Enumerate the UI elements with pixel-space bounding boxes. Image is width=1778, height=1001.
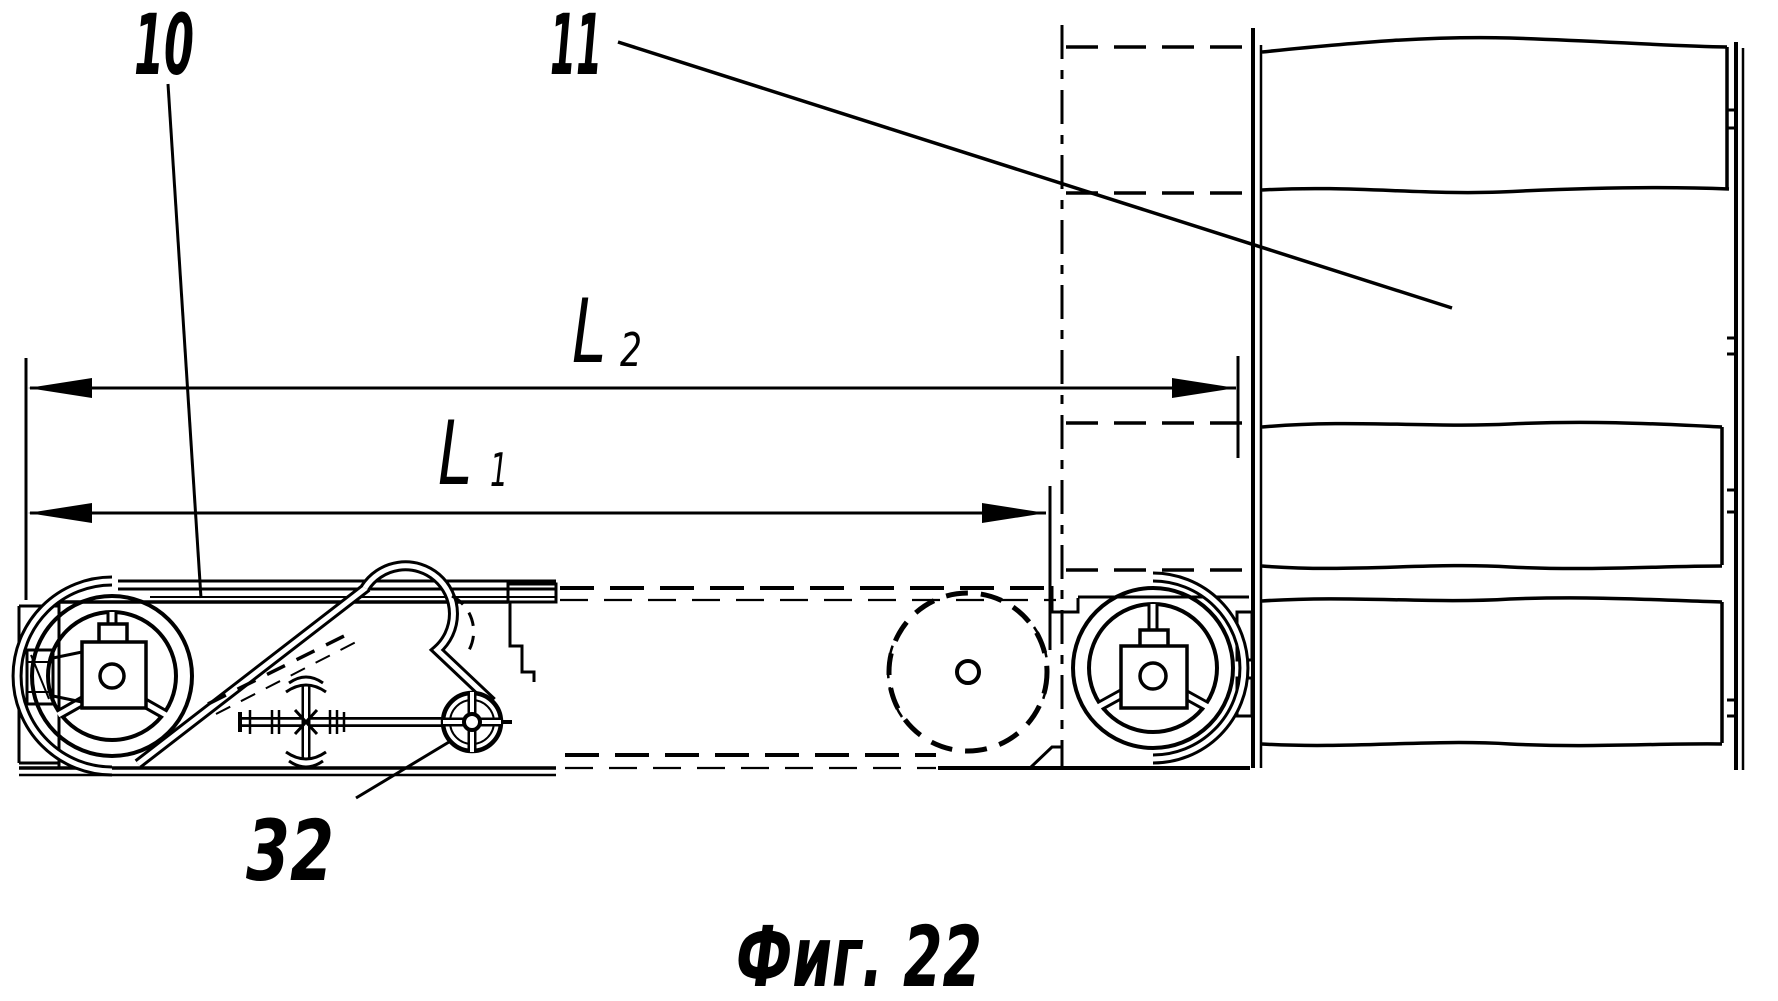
right-wheel bbox=[1073, 577, 1244, 759]
infeed-wall bbox=[1253, 28, 1261, 768]
dim-L2-subscript: 2 bbox=[620, 323, 642, 377]
dim-L2-letter: L bbox=[572, 280, 606, 383]
ref-label-32: 32 bbox=[246, 802, 334, 900]
leader-line-10 bbox=[168, 84, 201, 598]
hidden-log-lines bbox=[1066, 47, 1250, 570]
hidden-mid-lines bbox=[560, 588, 1056, 768]
tensioner-assembly bbox=[240, 677, 512, 767]
drawing-svg: 10 11 32 L 2 L 1 Фиг. 22 bbox=[0, 0, 1778, 1001]
ref-label-11: 11 bbox=[550, 0, 602, 94]
leader-lines bbox=[168, 42, 1452, 798]
hidden-drive-wheel bbox=[888, 593, 1048, 751]
dimension-L2 bbox=[26, 356, 1238, 600]
left-wheel bbox=[27, 596, 192, 756]
dim-L1-letter: L bbox=[438, 402, 472, 505]
tension-wheel bbox=[443, 692, 512, 752]
leader-line-11 bbox=[618, 42, 1452, 308]
dimension-label-L2: L 2 bbox=[572, 280, 642, 383]
figure-caption: Фиг. 22 bbox=[736, 908, 982, 1001]
figure-canvas: 10 11 32 L 2 L 1 Фиг. 22 bbox=[0, 0, 1778, 1001]
ref-label-10: 10 bbox=[134, 0, 194, 94]
far-support-wall bbox=[1727, 42, 1743, 770]
dim-L1-subscript: 1 bbox=[490, 443, 508, 497]
leader-line-32 bbox=[356, 742, 449, 798]
dimension-label-L1: L 1 bbox=[438, 402, 508, 505]
log-stack bbox=[1262, 38, 1729, 746]
dimension-L1 bbox=[28, 486, 1050, 650]
